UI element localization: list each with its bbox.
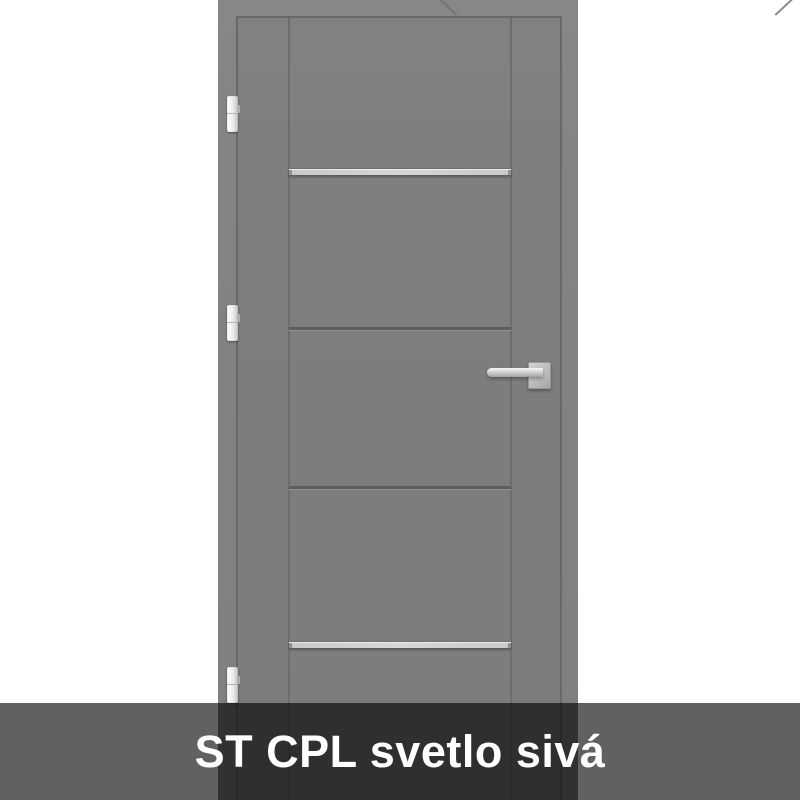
aluminium-strip-top bbox=[289, 168, 511, 175]
panel-groove-lower bbox=[289, 486, 511, 490]
hinge-middle bbox=[227, 305, 238, 341]
hinge-seam bbox=[227, 322, 238, 323]
hinge-knuckle bbox=[237, 314, 240, 322]
hinge-bottom bbox=[227, 667, 238, 703]
aluminium-strip-bottom bbox=[289, 641, 511, 648]
hinge-seam bbox=[227, 113, 238, 114]
hinge-seam bbox=[227, 684, 238, 685]
product-image: ST CPL svetlo sivá bbox=[0, 0, 800, 800]
panel-groove-upper bbox=[289, 327, 511, 331]
door-leaf bbox=[236, 16, 562, 800]
hinge-knuckle bbox=[237, 105, 240, 113]
door-vertical-groove-right bbox=[510, 18, 512, 800]
product-name: ST CPL svetlo sivá bbox=[195, 729, 606, 774]
frame-miter-joint-left bbox=[437, 0, 457, 16]
door-vertical-groove-left bbox=[288, 18, 290, 800]
frame-miter-joint-right bbox=[775, 0, 795, 16]
caption-banner: ST CPL svetlo sivá bbox=[0, 703, 800, 800]
hinge-top bbox=[227, 96, 238, 132]
hinge-knuckle bbox=[237, 676, 240, 684]
handle-lever bbox=[487, 368, 543, 377]
